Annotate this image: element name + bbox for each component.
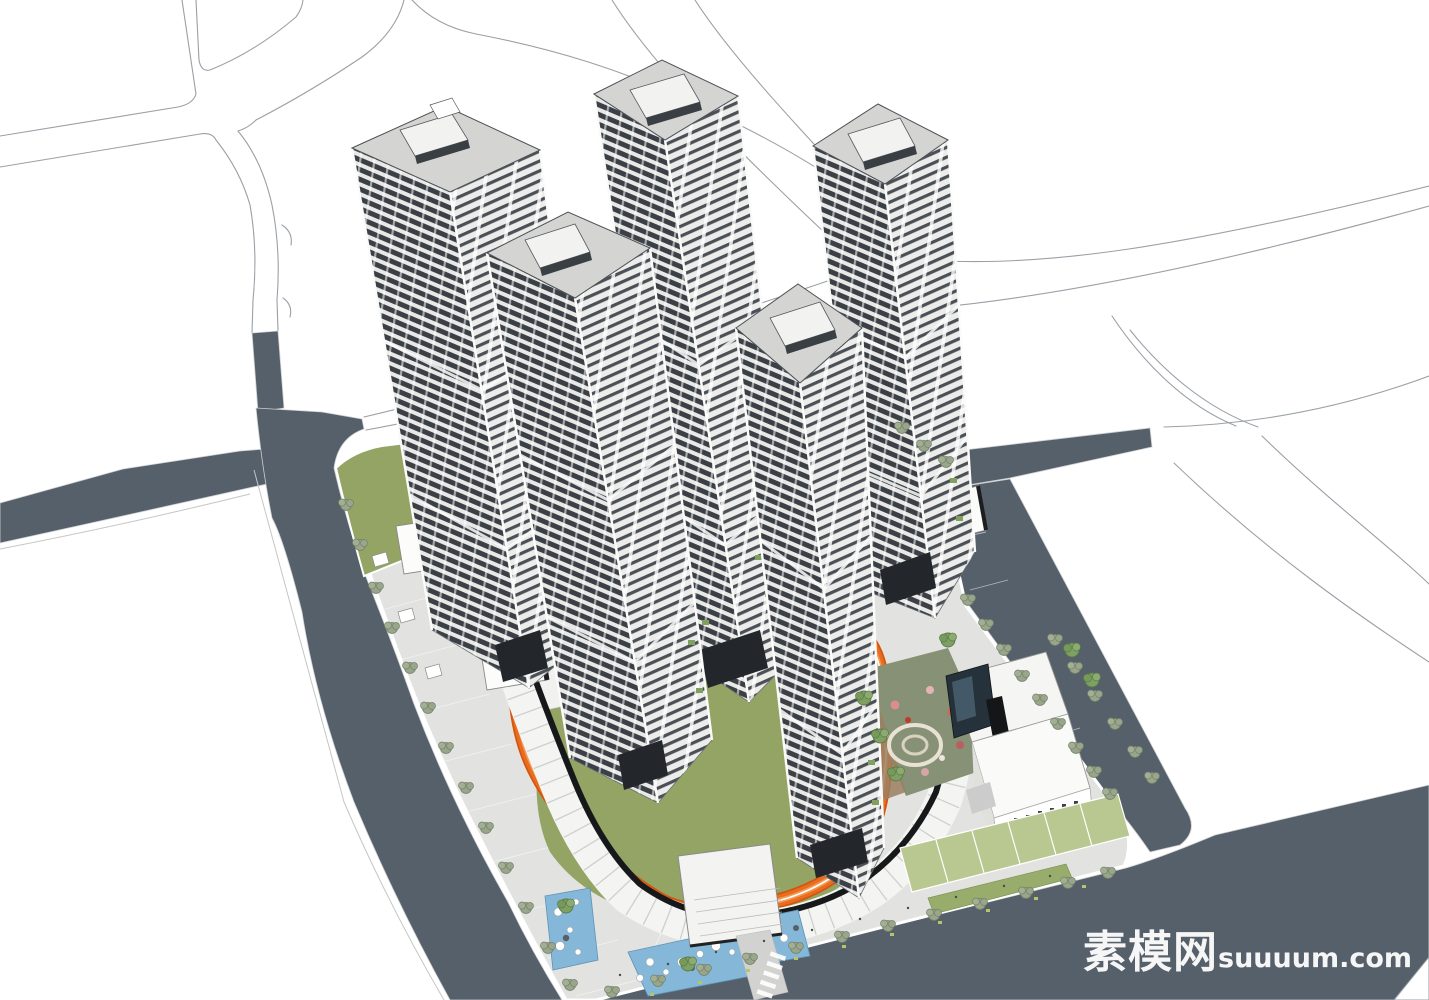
render-canvas [0,0,1429,1000]
road-west-stub [252,331,284,412]
architectural-render-page: 素模网suuuum.com [0,0,1429,1000]
